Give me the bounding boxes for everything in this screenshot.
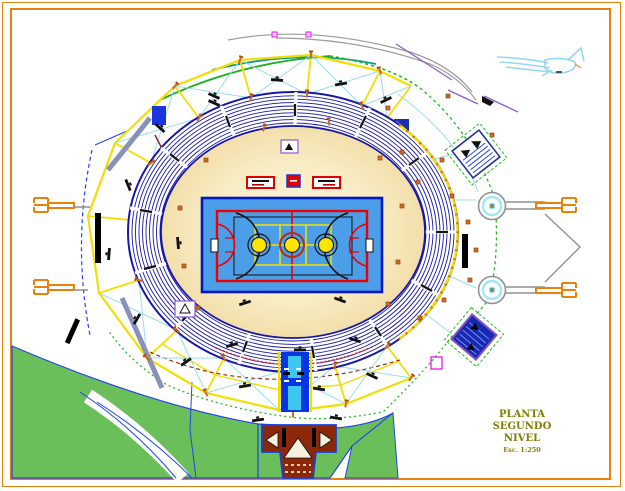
stair-detail-icon — [445, 123, 507, 185]
exit-fork-icon — [34, 198, 74, 212]
exit-fork-icon — [34, 280, 74, 294]
plan-title-line1: PLANTA — [499, 409, 545, 420]
west-entries — [34, 198, 90, 294]
column-circle-icon — [479, 193, 506, 304]
scoreboard-row — [247, 175, 340, 188]
north-plane-icon — [497, 48, 584, 76]
west-wall-bar — [95, 213, 101, 263]
plan-scale: Esc. 1:250 — [503, 446, 541, 454]
plan-canvas: PLANTA SEGUNDO NIVEL Esc. 1:250 — [0, 0, 625, 491]
east-wall-bar — [462, 234, 468, 268]
cad-sheet: PLANTA SEGUNDO NIVEL Esc. 1:250 — [0, 0, 625, 491]
basketball-court — [202, 198, 382, 292]
stair-block-west — [152, 106, 166, 125]
exit-fork-icon — [536, 198, 576, 212]
exit-fork-icon — [536, 283, 576, 297]
title-block: PLANTA SEGUNDO NIVEL Esc. 1:250 — [493, 409, 552, 454]
stair-detail-icon — [444, 307, 503, 366]
plan-title-line2: SEGUNDO — [493, 421, 552, 432]
plan-title-line3: NIVEL — [504, 433, 540, 444]
gate-guides — [506, 202, 580, 293]
